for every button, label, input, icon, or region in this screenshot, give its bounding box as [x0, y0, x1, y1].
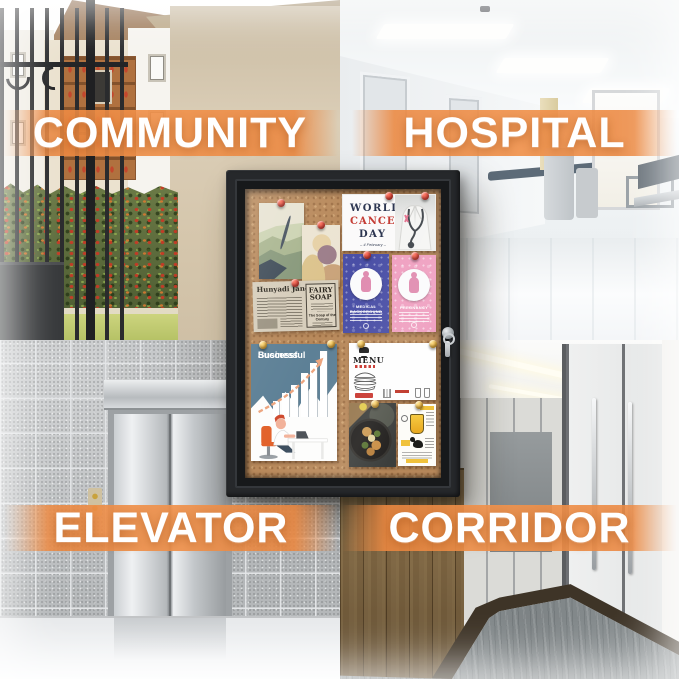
pin-icon [415, 401, 423, 409]
fries-sketch [383, 389, 391, 398]
poster-badge [363, 323, 369, 329]
label-elevator: ELEVATOR [4, 505, 338, 551]
label-hospital-text: HOSPITAL [403, 112, 625, 155]
wood-cabinet [340, 470, 464, 679]
menu-red-header [395, 390, 409, 393]
cancer-line3: DAY [359, 230, 387, 240]
rooster-silhouette [413, 440, 423, 448]
ceiling-light [376, 24, 515, 39]
pin-icon [291, 279, 299, 287]
pin-icon [429, 340, 437, 348]
poster-restaurant-menu [398, 404, 436, 466]
pin-icon [277, 199, 285, 207]
pin-icon [327, 340, 335, 348]
fence-panel [0, 262, 64, 340]
pin-icon [411, 252, 419, 260]
board-door-frame: Hunyadi János FAIRY SOAP The Soap of the… [235, 179, 451, 488]
menu-text-lines [425, 438, 434, 450]
figure-illustration [361, 276, 371, 292]
poster-badge [411, 322, 417, 328]
newspaper-text-lines [257, 297, 303, 318]
pin-icon [385, 192, 393, 200]
poster-text-lines [350, 311, 382, 321]
soap-ad-lines [312, 322, 332, 328]
medical-equipment [544, 148, 574, 220]
poster-landscape-art [259, 203, 304, 279]
menu-title: MENU [353, 355, 377, 365]
figure-illustration [409, 277, 419, 293]
poster-circle [350, 268, 382, 300]
pin-icon [363, 251, 371, 259]
burger-sketch [352, 369, 378, 391]
pin-icon [421, 192, 429, 200]
poster-shapes-art [302, 225, 340, 287]
window [148, 54, 166, 82]
poster-text-lines [399, 312, 430, 322]
pin-icon [357, 340, 365, 348]
cancer-line1: WORLD [350, 204, 401, 214]
person-at-desk-illustration [253, 411, 336, 460]
ceiling-light [496, 58, 610, 73]
price-circle [401, 415, 408, 422]
door-reflection [114, 618, 226, 660]
poster-food-photo [349, 403, 396, 467]
poster-medical-background: MEDICAL BACKGROUND [343, 254, 389, 333]
newspaper-photo [257, 318, 277, 329]
poster-world-cancer-day: WORLD CANCER DAY – 4 February – [342, 194, 436, 251]
yellow-banner [406, 459, 428, 463]
soap-ad: FAIRY SOAP The Soap of the Century [305, 283, 336, 328]
newspaper-text-lines [280, 318, 302, 329]
soap-ad-subtitle: The Soap of the Century [308, 313, 336, 322]
drink-sketch [415, 388, 421, 398]
poster-vintage-newspaper: Hunyadi János FAIRY SOAP The Soap of the… [252, 280, 339, 332]
soap-ad-title: FAIRY SOAP [306, 286, 334, 301]
label-corridor: CORRIDOR [342, 505, 677, 551]
poster-burger-menu: MENU [349, 343, 436, 400]
pin-icon [259, 341, 267, 349]
pregnancy-title: PREGNANCY [392, 305, 436, 310]
doctor-photo [395, 195, 435, 250]
cancer-date: – 4 February – [345, 242, 401, 247]
key-icon [445, 341, 450, 357]
beer-glass-sketch [410, 414, 424, 434]
ceiling-fixture [480, 6, 490, 12]
pin-icon [371, 400, 379, 408]
menu-red-squiggle [355, 365, 375, 368]
fence-post [86, 0, 95, 340]
cork-surface: Hunyadi János FAIRY SOAP The Soap of the… [245, 189, 441, 478]
label-corridor-text: CORRIDOR [388, 507, 630, 550]
medical-equipment [576, 168, 598, 218]
menu-text-lines [402, 452, 432, 459]
product-collage: COMMUNITY HOSPITAL ELEVATOR CORRIDOR [0, 0, 679, 679]
label-elevator-text: ELEVATOR [54, 507, 289, 550]
menu-items [381, 347, 433, 387]
menu-text-lines [426, 412, 434, 428]
label-community: COMMUNITY [2, 110, 338, 156]
pin-icon [317, 221, 325, 229]
doctor-illustration [395, 195, 435, 250]
label-hospital: HOSPITAL [352, 110, 677, 156]
poster-successful-business: Successful Business [251, 344, 337, 461]
menu-red-label [355, 393, 373, 398]
label-community-text: COMMUNITY [33, 112, 307, 155]
poster-circle [398, 269, 430, 301]
elevator-header [104, 380, 236, 410]
poster-pregnancy: PREGNANCY [392, 255, 436, 332]
soap-ad-lines [311, 303, 333, 312]
drink-sketch [424, 388, 430, 398]
yellow-box [401, 440, 410, 446]
bulletin-board: Hunyadi János FAIRY SOAP The Soap of the… [226, 170, 460, 497]
